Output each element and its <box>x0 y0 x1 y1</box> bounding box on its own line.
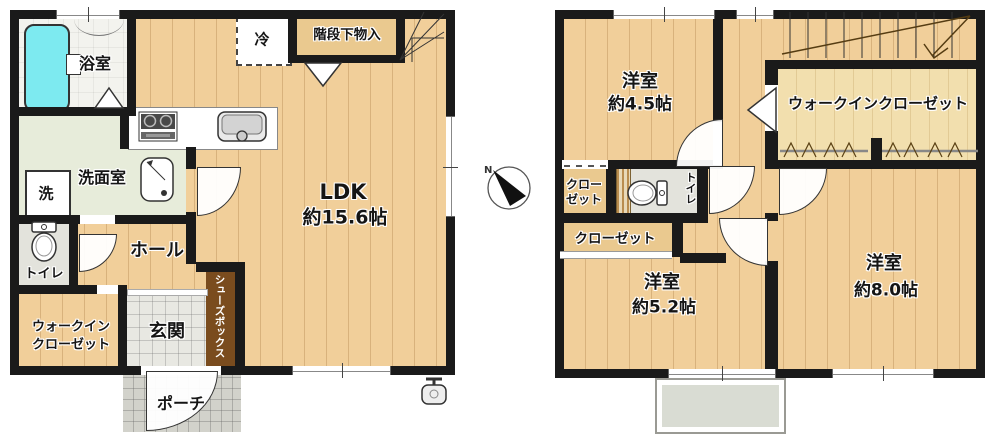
compass-icon: N <box>482 160 534 212</box>
wic-door-triangle-icon <box>746 86 778 134</box>
window <box>613 10 715 19</box>
window <box>446 116 455 217</box>
label-fridge: 冷 <box>254 29 269 50</box>
outdoor-faucet-icon <box>416 377 452 407</box>
wall-segment <box>115 215 196 224</box>
label-wic-1f-line1: ウォークイン <box>32 316 110 335</box>
wall-segment <box>765 60 778 85</box>
label-shoebox: シューズボックス <box>213 274 228 358</box>
closet-open-front <box>562 160 608 169</box>
stairs-icon <box>398 10 446 63</box>
label-bedroom-mid-name: 洋室 <box>644 268 680 294</box>
stove-icon <box>138 111 178 142</box>
label-ldk-name: LDK <box>319 180 366 204</box>
wall-segment <box>127 10 136 116</box>
label-closet-upper-line2: ゼット <box>566 191 602 208</box>
wall-segment <box>555 213 708 223</box>
wall-segment <box>120 107 129 149</box>
storage-door-triangle-icon <box>303 61 343 88</box>
hanger-rod-icon <box>780 138 978 160</box>
label-toilet-1f: トイレ <box>24 263 63 282</box>
window <box>56 10 120 19</box>
window <box>736 10 774 19</box>
wall-segment <box>118 285 127 366</box>
wall-segment <box>765 261 778 369</box>
label-bedroom-large-size: 約8.0帖 <box>854 276 918 301</box>
window <box>832 369 934 378</box>
bath-door-triangle-icon <box>92 86 126 110</box>
label-wic-1f-line2: クローゼット <box>32 334 110 353</box>
label-washroom: 洗面室 <box>78 164 126 188</box>
label-bedroom-large-name: 洋室 <box>866 249 902 275</box>
label-bedroom-small-size: 約4.5帖 <box>608 90 672 115</box>
toilet-icon <box>623 175 669 211</box>
label-porch: ポーチ <box>157 390 205 414</box>
toilet-icon <box>26 220 62 266</box>
label-bedroom-mid-size: 約5.2帖 <box>632 293 696 318</box>
label-bath: 浴室 <box>79 50 111 74</box>
label-ldk-size: 約15.6帖 <box>303 203 388 230</box>
doorway-gap <box>80 215 115 224</box>
label-wic-2f: ウォークインクローゼット <box>788 93 968 114</box>
sink-icon <box>216 110 268 143</box>
label-entrance: 玄関 <box>149 317 185 343</box>
wall-segment <box>10 285 97 294</box>
compass-north-label: N <box>484 165 492 176</box>
vanity-icon <box>138 153 176 205</box>
wall-segment <box>196 262 245 272</box>
doorway-gap <box>97 285 118 294</box>
wall-segment <box>697 162 708 215</box>
wall-segment <box>10 10 19 375</box>
wall-segment <box>765 131 778 162</box>
window <box>668 369 776 378</box>
label-hall: ホール <box>130 236 184 262</box>
label-closet-lower: クローゼット <box>575 227 656 247</box>
wall-segment <box>713 10 723 122</box>
stairs-icon <box>772 10 985 62</box>
wall-segment <box>680 253 726 263</box>
wall-segment <box>186 147 196 169</box>
closet-open-front <box>560 251 672 259</box>
floor-plan-canvas: 浴室 洗面室 洗 冷 階段下物入 LDK 約15.6帖 トイレ ホール ウォーク… <box>0 0 1000 444</box>
label-washer: 洗 <box>38 183 53 204</box>
wall-segment <box>69 224 78 285</box>
entrance-step <box>127 289 208 296</box>
wall-segment <box>672 213 683 257</box>
window <box>292 366 391 375</box>
label-under-stair-storage: 階段下物入 <box>313 23 381 43</box>
balcony <box>655 378 786 434</box>
wall-segment <box>606 162 616 215</box>
wall-segment <box>235 272 245 366</box>
wall-segment <box>555 10 564 378</box>
bathtub-icon <box>24 24 70 112</box>
label-toilet-2f: トイレ <box>682 172 698 205</box>
